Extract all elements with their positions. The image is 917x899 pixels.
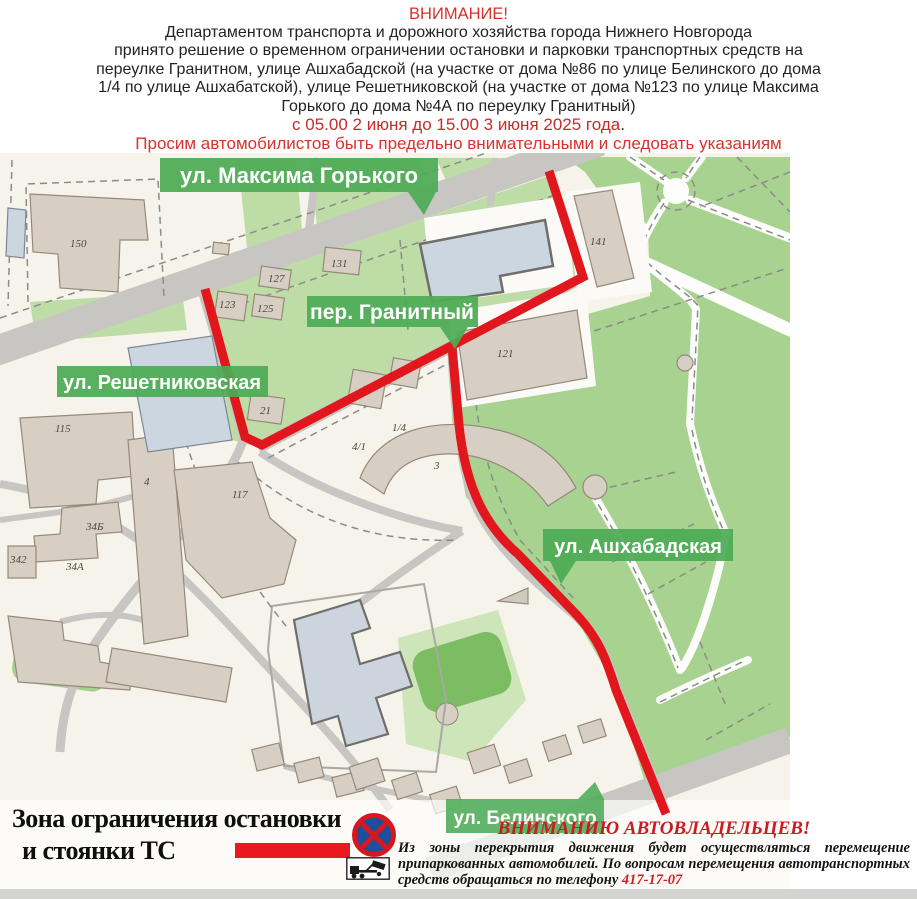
plea-line: Просим автомобилистов быть предельно вни… — [0, 135, 917, 154]
building-number: 3 — [433, 460, 440, 472]
building-number: 34А — [65, 561, 84, 573]
no-stopping-sign-icon — [352, 813, 396, 857]
bottom-edge-strip — [0, 889, 917, 899]
attention-heading: ВНИМАНИЕ! — [0, 5, 917, 24]
header-text-block: ВНИМАНИЕ! Департаментом транспорта и дор… — [0, 5, 917, 153]
building-number: 121 — [497, 348, 514, 360]
building-number: 131 — [331, 258, 348, 270]
building-number: 4/1 — [352, 441, 366, 453]
road-closure-notice-poster: ВНИМАНИЕ! Департаментом транспорта и дор… — [0, 0, 917, 899]
building-number: 123 — [219, 299, 236, 311]
owners-notice-body: Из зоны перекрытия движения будет осущес… — [398, 840, 910, 889]
tow-truck-icon — [346, 857, 390, 880]
restriction-date-line: с 05.00 2 июня до 15.00 3 июня 2025 года… — [0, 116, 917, 135]
building-number: 141 — [590, 236, 607, 248]
building-number: 342 — [9, 554, 27, 566]
svg-text:пер. Гранитный: пер. Гранитный — [310, 301, 474, 324]
restriction-date: с 05.00 2 июня до 15.00 3 июня 2025 года — [292, 115, 620, 134]
building-number: 4 — [144, 476, 150, 488]
header-line: переулке Гранитном, улице Ашхабадской (н… — [0, 61, 917, 80]
building-number: 150 — [70, 238, 87, 250]
svg-text:ул. Ашхабадская: ул. Ашхабадская — [554, 536, 722, 558]
building-number: 34Б — [85, 521, 104, 533]
no-stopping-sign-face — [357, 818, 391, 852]
notice-line: средств обращаться по телефону 417-17-07 — [398, 872, 910, 888]
svg-text:ул. Решетниковская: ул. Решетниковская — [63, 372, 261, 394]
header-line: Горького до дома №4А по переулку Гранитн… — [0, 98, 917, 117]
building-number: 125 — [257, 303, 274, 315]
notice-line-prefix: средств обращаться по телефону — [398, 872, 622, 888]
building-number: 1/4 — [392, 422, 407, 434]
phone-number: 417-17-07 — [622, 872, 682, 888]
city-map: 150 131 127 123 125 141 121 9 7 21 1/4 4… — [0, 153, 790, 899]
notice-line: Из зоны перекрытия движения будет осущес… — [398, 840, 910, 856]
legend-zone-title-line1: Зона ограничения остановки — [12, 804, 341, 834]
notice-line: припаркованных автомобилей. По вопросам … — [398, 856, 910, 872]
svg-text:ул. Максима Горького: ул. Максима Горького — [180, 163, 418, 188]
legend-zone-title-line2: и стоянки ТС — [22, 836, 176, 866]
building-number: 21 — [260, 405, 271, 417]
building-number: 115 — [55, 423, 71, 435]
park-roundabout — [663, 178, 689, 204]
street-badge-reshetnikovskaya: ул. Решетниковская — [57, 366, 268, 397]
building-number: 117 — [232, 489, 248, 501]
header-line: 1/4 по улице Ашхабатской), улице Решетни… — [0, 79, 917, 98]
header-line: принято решение о временном ограничении … — [0, 42, 917, 61]
building-number: 127 — [268, 273, 285, 285]
restricted-zone-swatch — [235, 843, 350, 858]
owners-notice-title: ВНИМАНИЮ АВТОВЛАДЕЛЬЦЕВ! — [398, 818, 910, 840]
date-period: . — [620, 115, 625, 134]
header-line: Департаментом транспорта и дорожного хоз… — [0, 24, 917, 43]
